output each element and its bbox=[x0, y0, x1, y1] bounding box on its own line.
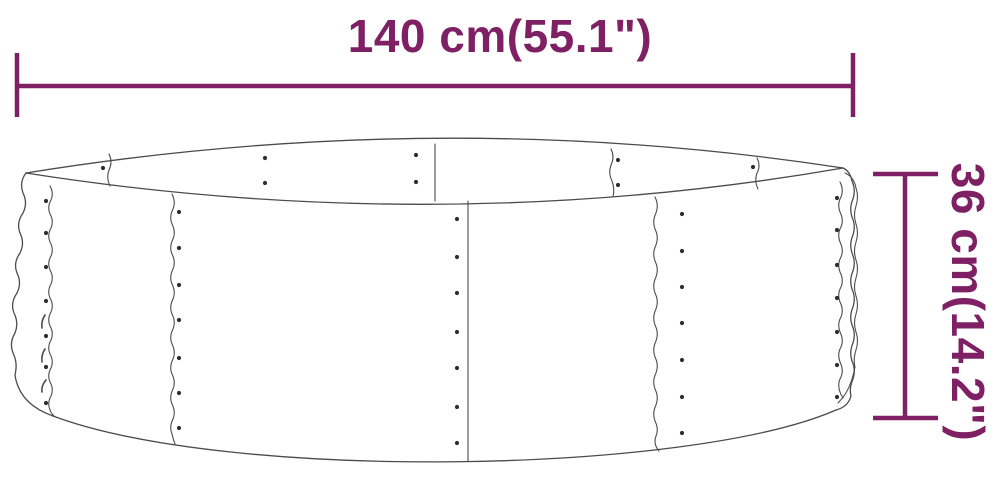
rivet-dots-seam-2 bbox=[177, 210, 181, 430]
height-dimension-label: 36 cm(14.2") bbox=[942, 163, 994, 441]
bottom-edge bbox=[53, 410, 836, 462]
rivet-dots-seam-3 bbox=[455, 217, 459, 445]
rim-seam-3 bbox=[610, 149, 614, 197]
wall-seam-4 bbox=[654, 197, 659, 451]
product-dimension-diagram: 140 cm(55.1") 36 cm(14.2") bbox=[0, 0, 1000, 480]
width-dimension-label: 140 cm(55.1") bbox=[348, 10, 653, 62]
rim-seam-1 bbox=[108, 154, 111, 186]
raised-bed-drawing: 140 cm(55.1") 36 cm(14.2") bbox=[0, 0, 1000, 480]
rivet-dots-seam-1 bbox=[44, 199, 48, 405]
metal-reflection-dashes bbox=[42, 315, 46, 392]
rivet-dots-seam-5 bbox=[835, 196, 839, 399]
rim-seam-4 bbox=[756, 158, 759, 189]
height-dimension: 36 cm(14.2") bbox=[873, 163, 994, 441]
wall-seam-5 bbox=[839, 182, 843, 398]
raised-bed-outline bbox=[11, 138, 857, 462]
left-outer-edge bbox=[11, 173, 53, 416]
rivet-dots-seam-4 bbox=[680, 212, 684, 435]
width-dimension: 140 cm(55.1") bbox=[17, 10, 853, 117]
wall-seam-2 bbox=[171, 194, 175, 444]
wall-seam-1 bbox=[49, 186, 54, 416]
rivet-dots-rim bbox=[101, 153, 755, 187]
